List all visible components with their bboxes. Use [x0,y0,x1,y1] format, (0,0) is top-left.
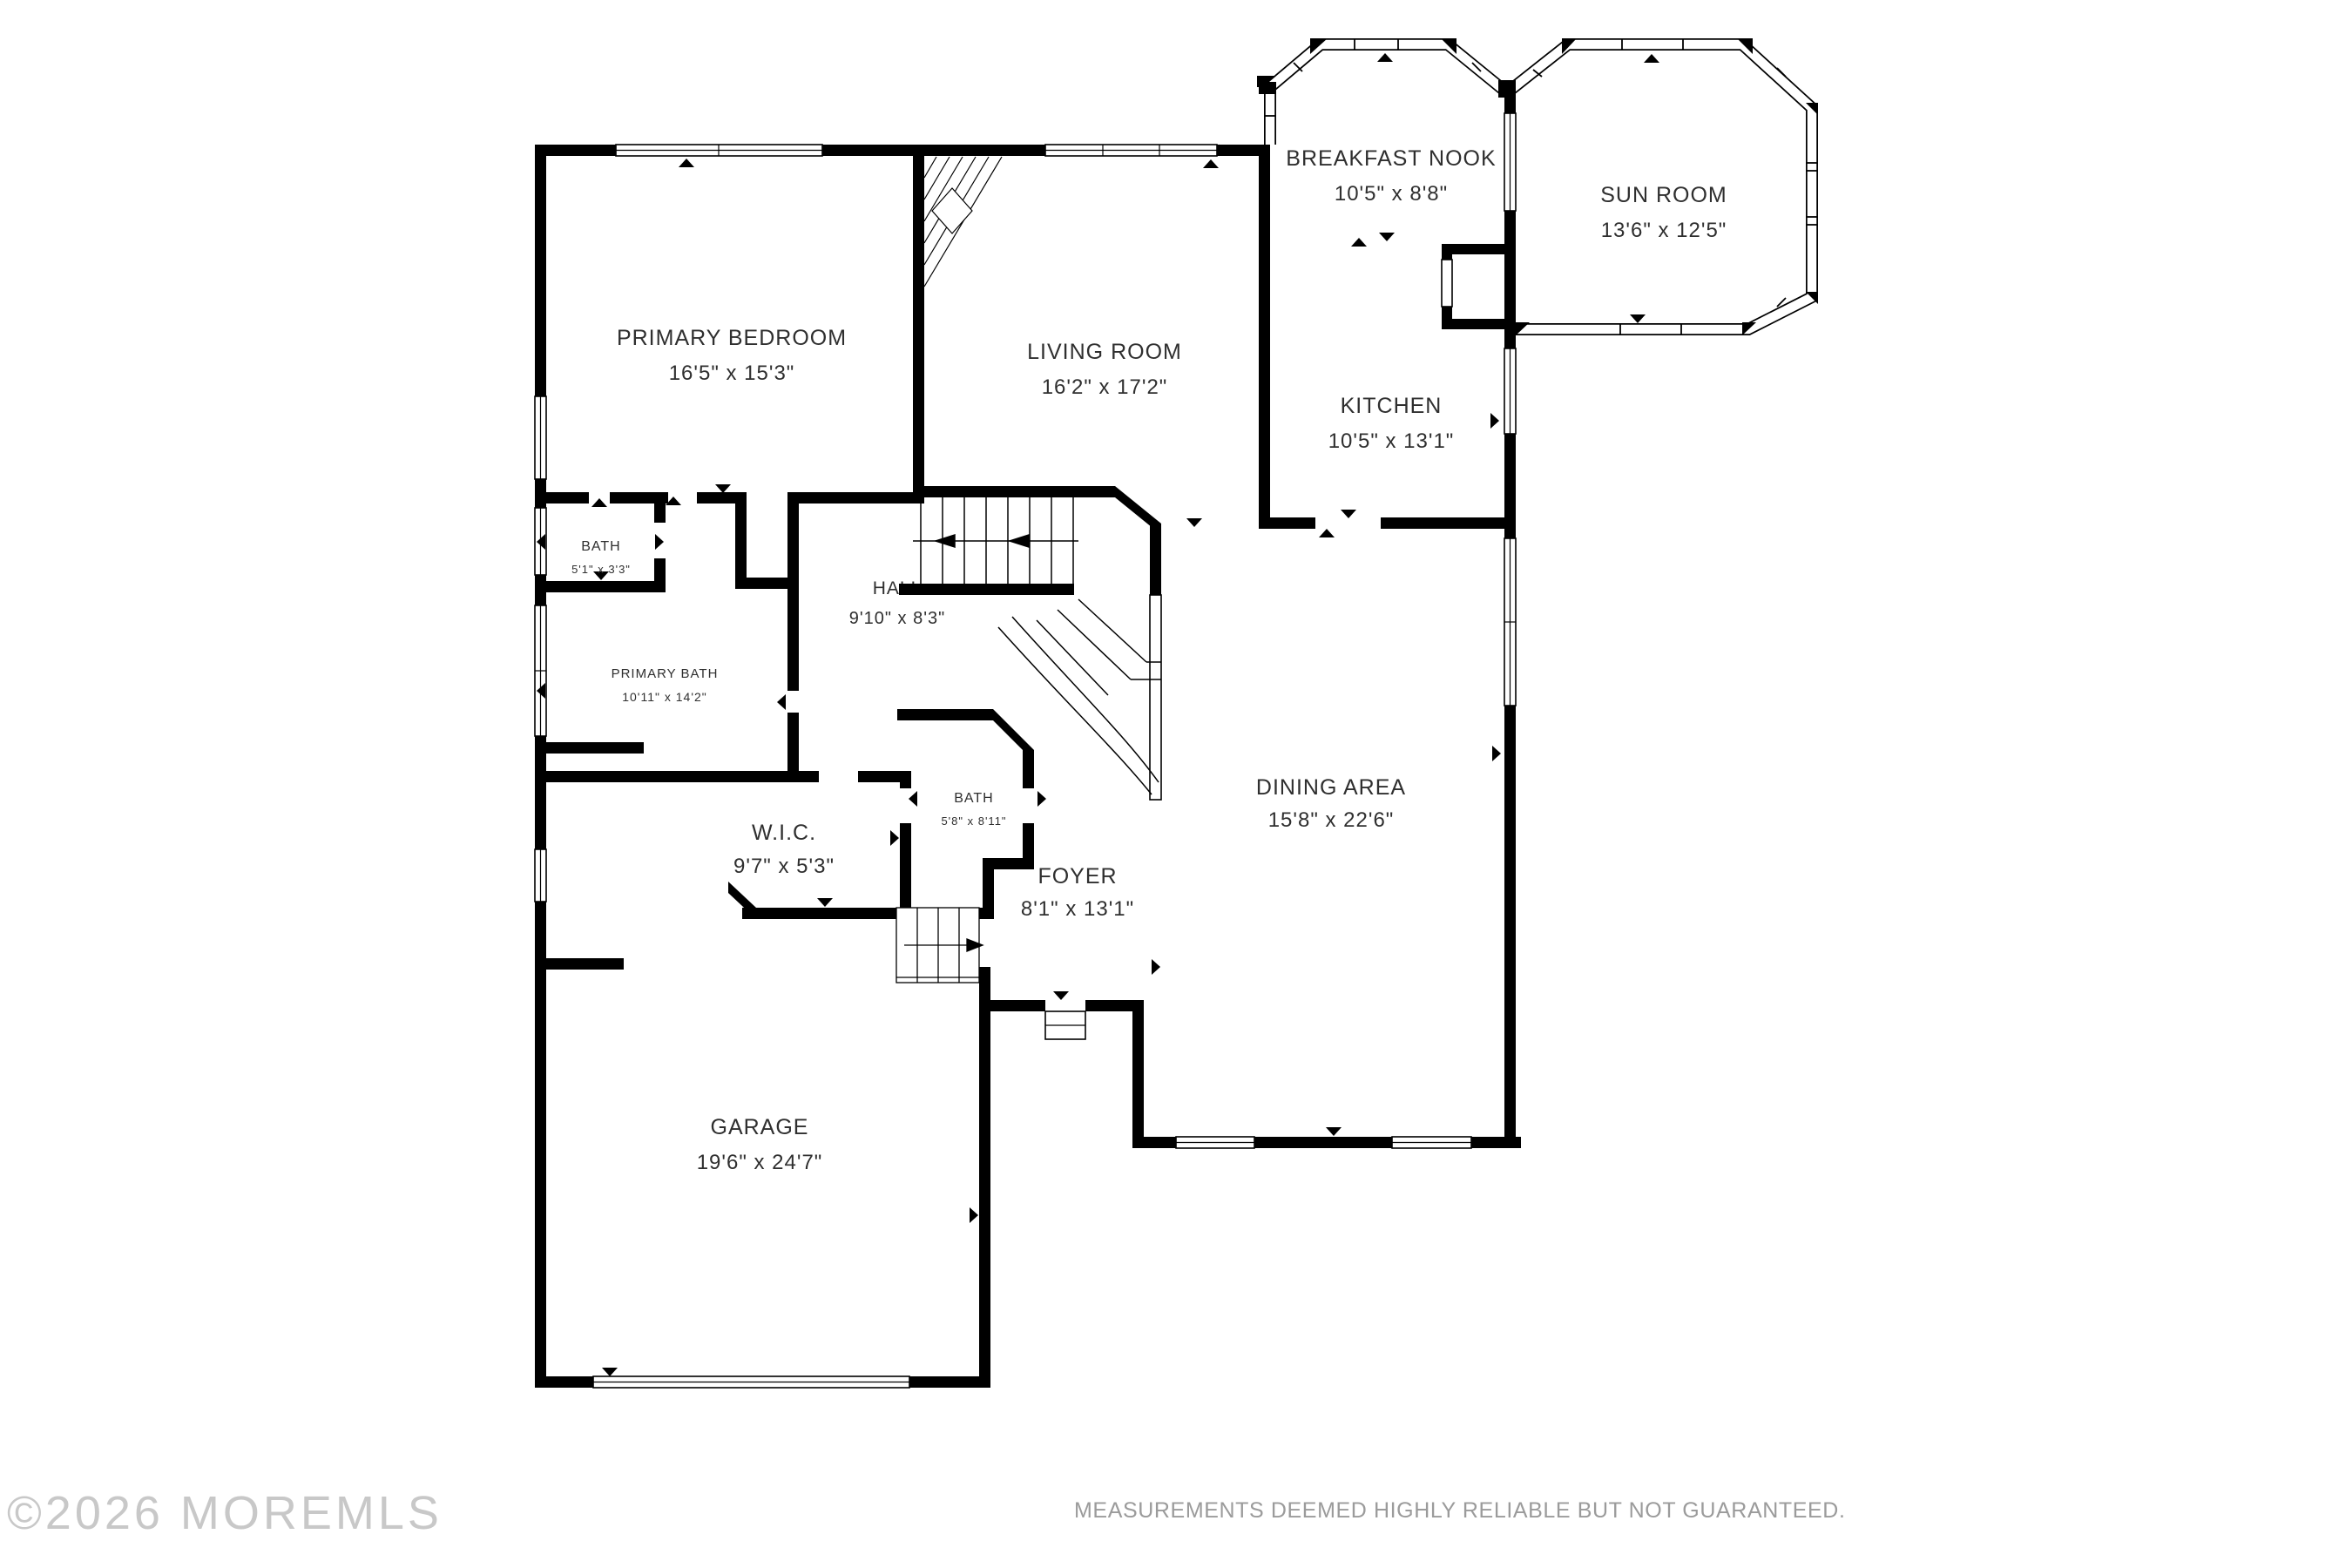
room-name-living-room: LIVING ROOM [1027,340,1182,364]
room-dims-living-room: 16'2" x 17'2" [1042,375,1168,399]
room-name-breakfast-nook: BREAKFAST NOOK [1286,146,1496,171]
room-dims-kitchen: 10'5" x 13'1" [1328,429,1455,453]
door-marker-sun-window [1644,54,1659,63]
door-marker-primary-bath-door [777,694,786,710]
room-name-foyer: FOYER [1037,864,1117,889]
door-marker-dining-east-opening [1492,746,1501,761]
room-label-dining-area: DINING AREA15'8" x 22'6" [1256,775,1406,832]
door-marker-hall-opening [1186,518,1202,527]
door-marker-nook-opening-b [1379,233,1395,241]
door-marker-kitchen-door-b [1319,529,1335,537]
door-marker-bath-door-side [655,534,664,550]
room-dims-primary-bedroom: 16'5" x 15'3" [669,362,795,385]
room-label-foyer: FOYER8'1" x 13'1" [1021,864,1134,921]
fireplace-hatch [924,157,1002,287]
door-marker-bath-door-top [591,498,607,507]
floor-plan-page: HALL9'10" x 8'3" [0,0,2352,1568]
room-dims-primary-bath: 10'11" x 14'2" [622,690,707,704]
room-label-kitchen: KITCHEN10'5" x 13'1" [1328,394,1455,453]
room-name-wic: W.I.C. [752,821,816,845]
door-marker-bedroom-window [679,159,694,167]
room-dims-bath-2: 5'8" x 8'11" [941,814,1006,828]
door-marker-nook-window [1377,53,1393,62]
room-name-bath: BATH [581,539,620,554]
room-dims-breakfast-nook: 10'5" x 8'8" [1335,182,1448,206]
room-dims-garage: 19'6" x 24'7" [697,1151,823,1174]
room-label-garage: GARAGE19'6" x 24'7" [697,1115,823,1174]
door-marker-bath2-west-door [909,791,917,807]
door-marker-kitchen-door-a [1341,510,1356,518]
room-name-primary-bedroom: PRIMARY BEDROOM [617,326,847,350]
room-name-kitchen: KITCHEN [1341,394,1443,418]
room-dims-sun-room: 13'6" x 12'5" [1601,219,1727,242]
room-label-primary-bath: PRIMARY BATH10'11" x 14'2" [612,666,719,704]
room-label-primary-bedroom: PRIMARY BEDROOM16'5" x 15'3" [617,326,847,385]
door-marker-bedroom-door [715,484,731,493]
room-label-living-room: LIVING ROOM16'2" x 17'2" [1027,340,1182,399]
room-dims-wic: 9'7" x 5'3" [733,855,835,878]
room-dims-dining-area: 15'8" x 22'6" [1268,808,1395,832]
room-name-primary-bath: PRIMARY BATH [612,666,719,681]
door-marker-living-window [1203,159,1219,168]
door-marker-wic-bottom [817,898,833,907]
room-dims-bath: 5'1" x 3'3" [571,563,631,576]
door-marker-garage-door [602,1368,618,1376]
entry-steps [896,908,983,983]
disclaimer-text: MEASUREMENTS DEEMED HIGHLY RELIABLE BUT … [1074,1498,1846,1524]
room-label-bath: BATH5'1" x 3'3" [571,539,631,576]
room-label-wic: W.I.C.9'7" x 5'3" [733,821,835,878]
room-name-sun-room: SUN ROOM [1600,183,1727,207]
door-marker-garage-east [970,1207,978,1223]
room-name-garage: GARAGE [711,1115,809,1139]
room-label-sun-room: SUN ROOM13'6" x 12'5" [1600,183,1727,242]
walls-layer [535,76,1521,1388]
room-name-bath-2: BATH [954,791,993,806]
floor-plan-drawing: HALL9'10" x 8'3" [0,0,2352,1568]
door-marker-sun-door [1630,314,1646,323]
door-marker-front-door [1053,991,1069,1000]
room-name-dining-area: DINING AREA [1256,775,1406,800]
door-marker-dining-window [1326,1127,1342,1136]
room-dims-hall: 9'10" x 8'3" [849,609,946,628]
door-marker-bath2-east-door [1037,791,1046,807]
room-dims-foyer: 8'1" x 13'1" [1021,897,1134,921]
main-staircase [913,497,1161,794]
door-marker-wic-top-door [890,830,899,846]
door-marker-kitchen-window [1490,413,1499,429]
room-label-bath-2: BATH5'8" x 8'11" [941,791,1006,828]
room-label-breakfast-nook: BREAKFAST NOOK10'5" x 8'8" [1286,146,1496,206]
mls-watermark: ©2026 MOREMLS [7,1486,443,1540]
door-marker-foyer-opening [1152,959,1160,975]
door-marker-nook-opening-a [1351,238,1367,247]
